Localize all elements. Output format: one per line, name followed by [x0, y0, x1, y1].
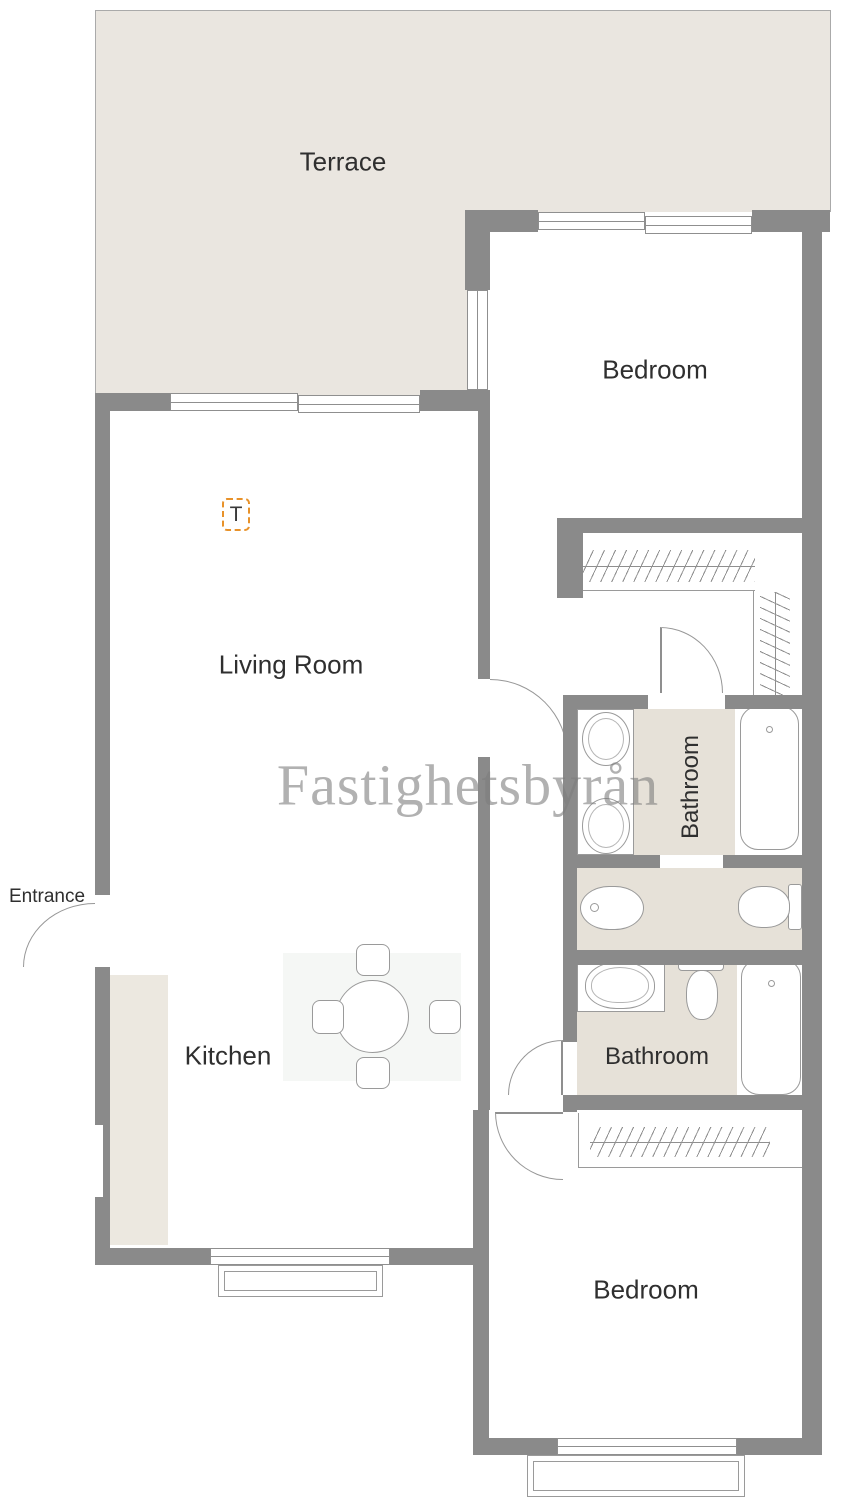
floor-plan: Terrace Bedroom Living Room Bathroom Bat…: [0, 0, 843, 1504]
telecom-marker: T: [222, 498, 250, 531]
wall: [723, 855, 802, 868]
wall: [440, 1248, 478, 1265]
bedroom-door-arc: [495, 1112, 563, 1180]
wall: [557, 518, 802, 533]
terrace-floor: [95, 10, 468, 395]
wall: [737, 1438, 822, 1455]
wall: [563, 1095, 802, 1110]
chair: [312, 1000, 344, 1034]
window-sill: [218, 1265, 383, 1297]
watermark: Fastighetsbyrån: [277, 752, 659, 819]
wall: [95, 393, 110, 895]
bedroom-bottom-label: Bedroom: [593, 1275, 699, 1306]
chair: [356, 944, 390, 976]
closet-shelf-line: [753, 590, 754, 695]
window-sill: [527, 1455, 745, 1497]
window: [538, 212, 645, 230]
wall: [95, 1248, 210, 1265]
bidet-tap: [590, 903, 599, 912]
window: [210, 1248, 390, 1265]
dining-table: [336, 980, 409, 1053]
wardrobe-rail: [590, 1127, 770, 1157]
bathtub-drain: [766, 726, 773, 733]
entrance-label: Entrance: [9, 886, 85, 908]
window: [298, 395, 420, 413]
toilet: [686, 970, 718, 1020]
window: [170, 393, 298, 411]
wall: [473, 1438, 557, 1455]
telecom-marker-letter: T: [230, 503, 243, 527]
wall: [557, 533, 583, 598]
wall: [473, 1110, 489, 1455]
wall: [478, 411, 490, 679]
terrace-floor: [468, 10, 830, 212]
chair: [356, 1057, 390, 1089]
wall: [563, 855, 660, 868]
closet-rail: [760, 592, 790, 695]
wall: [563, 695, 648, 709]
entrance-door-arc: [23, 903, 95, 967]
toilet: [738, 886, 790, 928]
terrace-border: [830, 10, 831, 212]
terrace-border: [95, 10, 830, 11]
toilet-tank: [788, 884, 802, 930]
sink: [585, 961, 655, 1009]
wall: [563, 950, 802, 965]
bathroom-bottom-label: Bathroom: [605, 1043, 709, 1071]
terrace-label: Terrace: [300, 147, 387, 178]
window: [557, 1438, 737, 1455]
bathroom-top-label: Bathroom: [677, 735, 705, 839]
kitchen-label: Kitchen: [185, 1041, 272, 1072]
wall: [465, 210, 490, 290]
window: [467, 290, 488, 390]
terrace-border: [95, 10, 96, 395]
closet-shelf-line: [583, 590, 755, 591]
closet-rail: [583, 550, 755, 582]
wall: [440, 390, 490, 411]
wall: [95, 967, 110, 1248]
living-room-label: Living Room: [219, 650, 364, 681]
closet-door-arc: [660, 627, 723, 693]
living-room-door-arc: [490, 679, 568, 757]
window: [645, 216, 752, 234]
bathtub-drain: [768, 980, 775, 987]
bathroom-door-arc: [508, 1040, 563, 1095]
bedroom-top-label: Bedroom: [602, 355, 708, 386]
kitchen-counter: [110, 975, 168, 1245]
chair: [429, 1000, 461, 1034]
wall: [563, 695, 577, 1042]
wall: [802, 210, 822, 1455]
wall-recess: [95, 1125, 103, 1197]
wall: [725, 695, 802, 709]
